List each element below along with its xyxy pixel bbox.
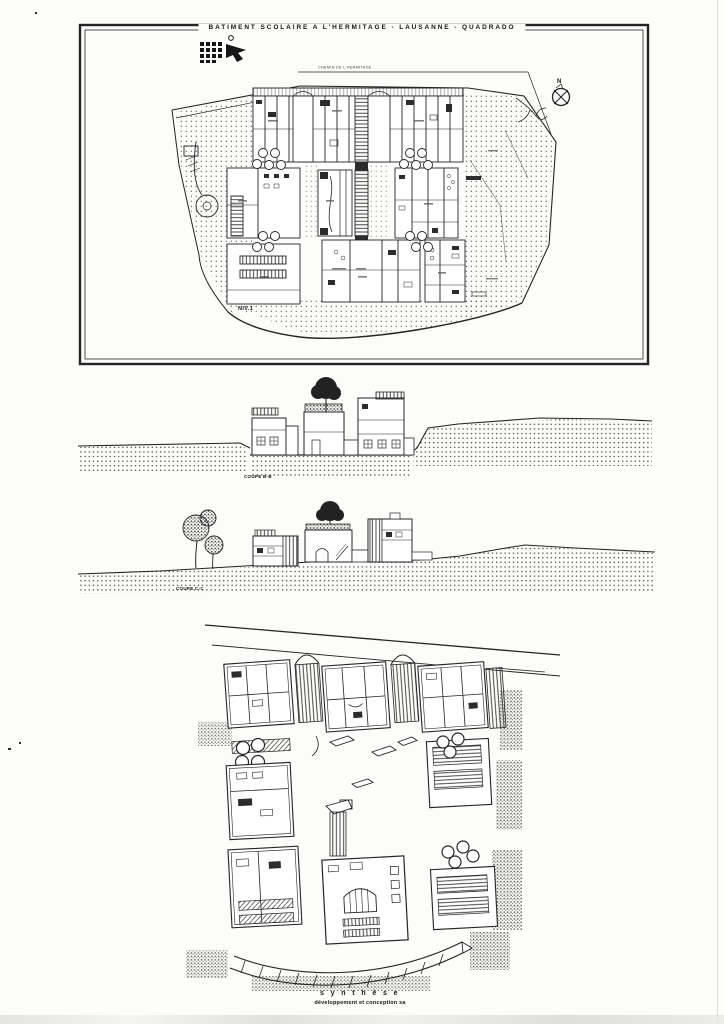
section-bb-label: COUPE B-B xyxy=(244,474,272,479)
axon-block-mid-right xyxy=(426,738,491,807)
scan-speck xyxy=(35,12,37,14)
section-cc-trees xyxy=(183,510,223,569)
axon-courtyard-objects xyxy=(312,736,417,809)
scanned-drawing-sheet: BATIMENT SCOLAIRE A L'HERMITAGE - LAUSAN… xyxy=(0,0,724,1024)
section-cc-right-building xyxy=(368,513,432,562)
axon-block-top-middle xyxy=(322,662,390,732)
scan-speck xyxy=(8,748,11,750)
axon-block-bottom-left xyxy=(228,846,302,928)
axon-block-bottom-right xyxy=(430,866,497,929)
section-cc-left-building xyxy=(253,530,298,566)
axon-vault-right xyxy=(390,654,419,723)
axon-subcaption: développement et conception sa xyxy=(314,1000,405,1006)
north-compass-icon xyxy=(553,84,570,106)
drawing-linework xyxy=(0,0,724,1024)
section-coupe-cc xyxy=(78,501,655,594)
section-cc-label: COUPE C-C xyxy=(176,586,204,591)
drawing-title: BATIMENT SCOLAIRE A L'HERMITAGE - LAUSAN… xyxy=(199,24,526,31)
scan-bottom-band xyxy=(0,1015,724,1024)
axon-caption: s y n t h è s e xyxy=(320,990,400,997)
axon-stair-tower xyxy=(326,800,352,856)
axon-trees-bottom-right xyxy=(442,841,479,868)
logo-grid-icon xyxy=(200,42,222,63)
axon-block-top-right xyxy=(418,662,488,732)
road-label: CHEMIN DE L'HERMITAGE xyxy=(318,65,372,70)
level-label: NIV.1 xyxy=(238,306,253,312)
section-cc-center-building xyxy=(305,501,368,562)
scan-edge-line xyxy=(717,0,718,1024)
section-bb-left-building xyxy=(252,408,298,455)
section-bb-center-tower xyxy=(304,377,358,455)
section-coupe-bb xyxy=(78,377,652,477)
section-bb-right-building xyxy=(358,392,414,455)
school-building-plan xyxy=(227,88,465,304)
axon-block-bottom-center xyxy=(322,856,408,944)
axon-vault-left xyxy=(294,654,323,723)
scan-speck xyxy=(19,742,21,744)
axon-block-mid-left xyxy=(226,762,294,839)
axonometric-view xyxy=(186,625,560,991)
axon-block-top-left xyxy=(224,660,294,728)
north-label: N xyxy=(557,79,561,85)
cursor-flag-icon xyxy=(226,36,246,62)
